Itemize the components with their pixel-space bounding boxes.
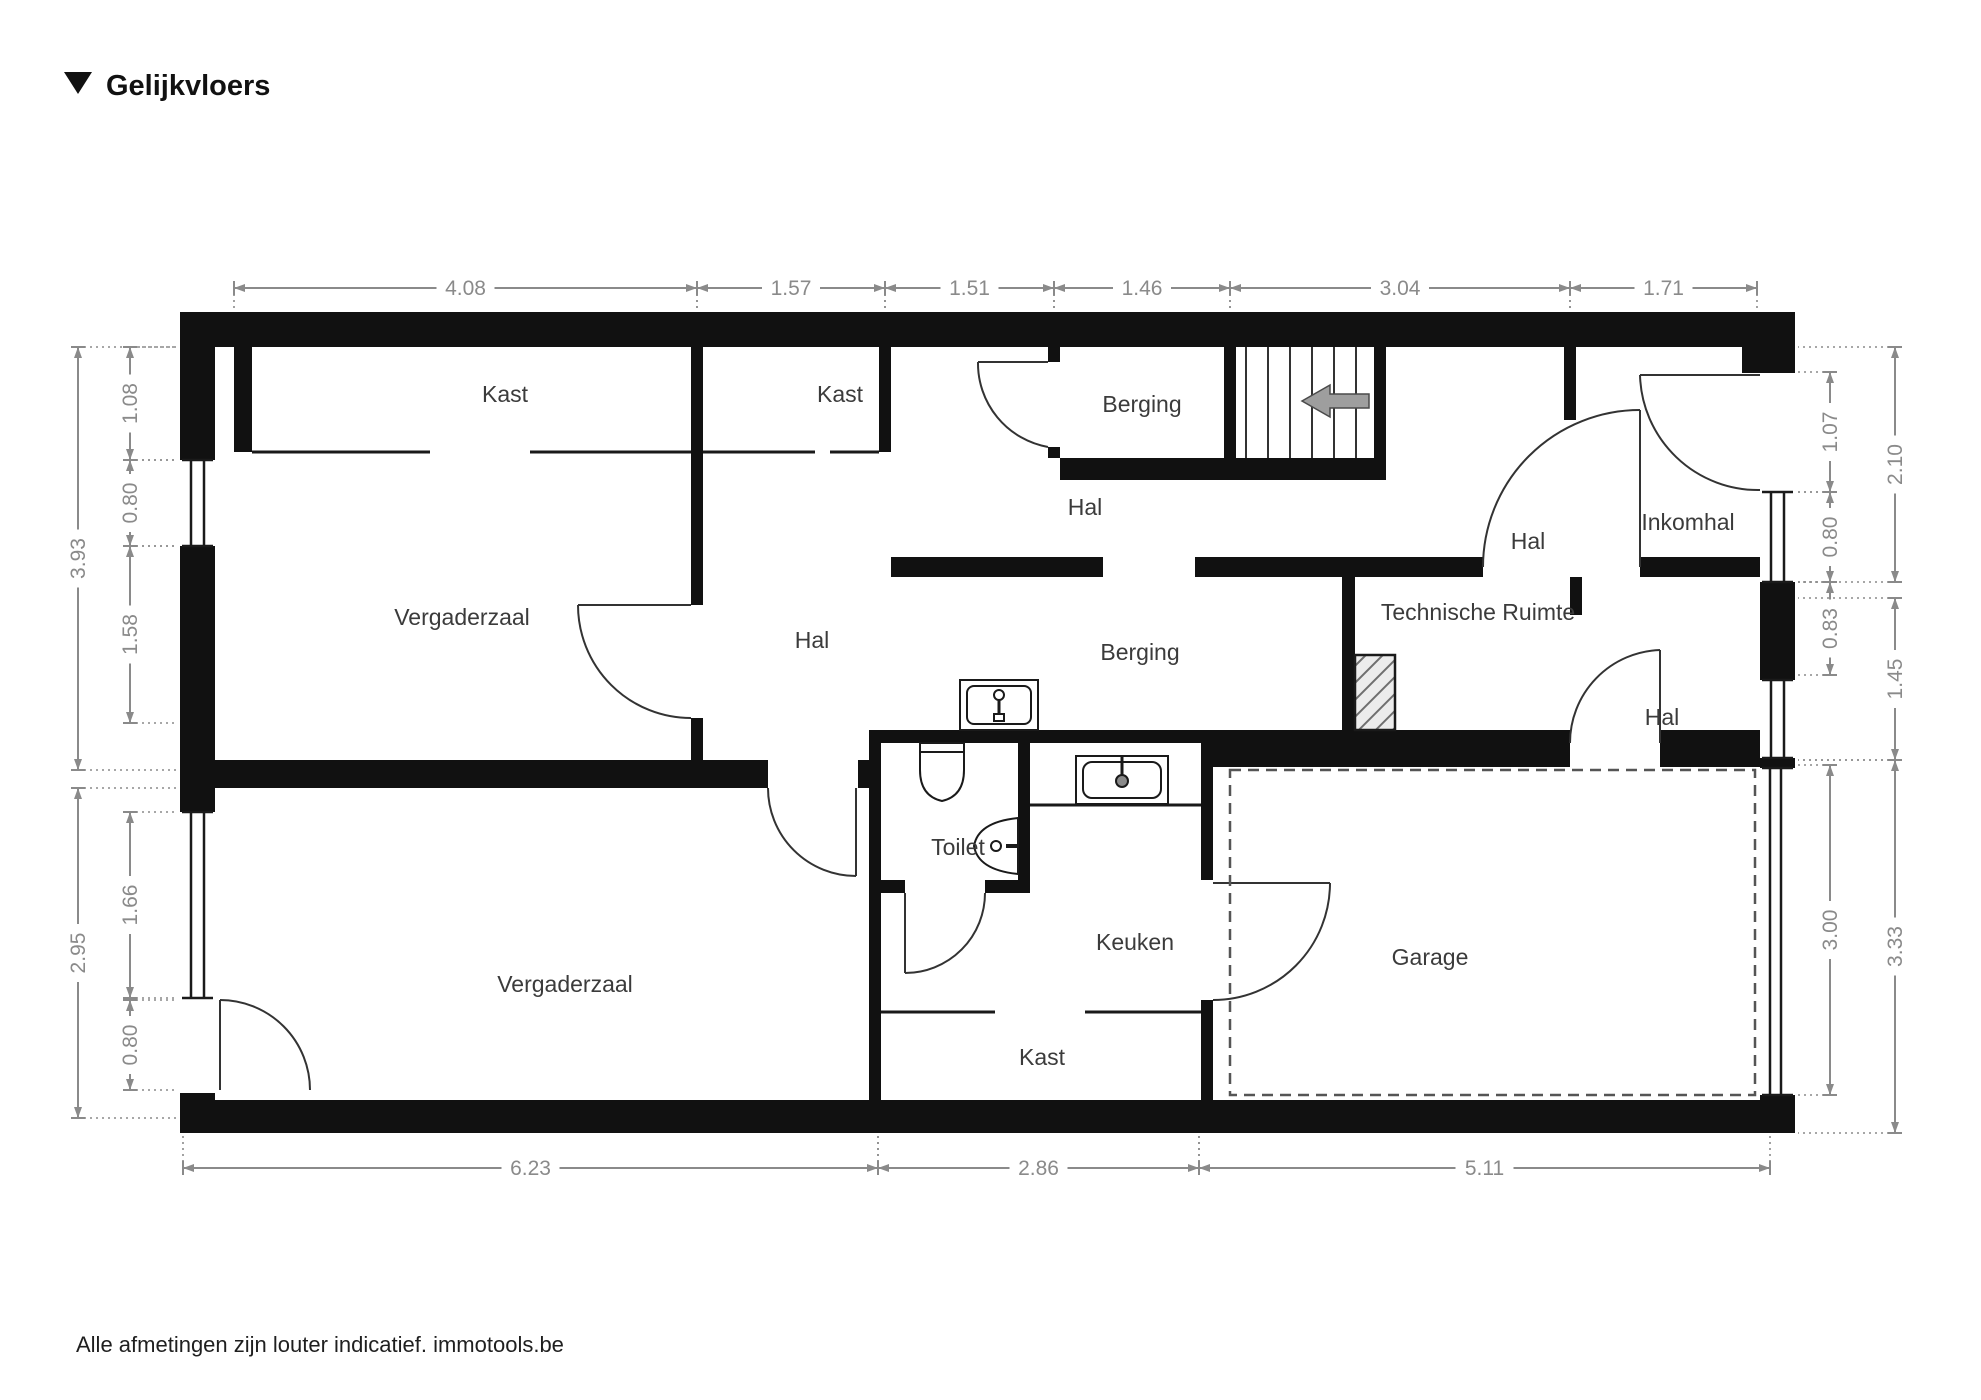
dimension-value: 0.80	[1819, 517, 1842, 558]
dimension-0.80: 0.80	[1798, 492, 1842, 582]
dimension-1.45: 1.45	[1798, 598, 1907, 760]
wall	[180, 1093, 215, 1133]
dimension-arrow-icon	[1826, 372, 1834, 383]
dimension-value: 2.86	[1018, 1157, 1059, 1180]
dimension-1.08: 1.08	[119, 347, 178, 460]
dimension-arrow-icon	[126, 535, 134, 546]
dimension-arrow-icon	[126, 812, 134, 823]
dimension-arrow-icon	[74, 347, 82, 358]
dimension-arrow-icon	[74, 788, 82, 799]
window-icon	[1762, 680, 1793, 758]
floor-plan-svg: Gelijkvloers	[0, 0, 1981, 1400]
wall	[879, 347, 891, 452]
dimension-0.80: 0.80	[119, 460, 178, 546]
dimension-3.00: 3.00	[1798, 765, 1842, 1095]
toilet-bowl-icon	[920, 743, 964, 801]
dimension-arrow-icon	[1043, 284, 1054, 292]
kitchen-sink-icon	[1076, 756, 1168, 804]
dimension-arrow-icon	[126, 987, 134, 998]
dimension-arrow-icon	[1826, 582, 1834, 593]
wall	[1195, 557, 1483, 577]
dimension-arrow-icon	[1746, 284, 1757, 292]
room-label-hal: Hal	[1068, 494, 1103, 520]
room-labels: KastKastBergingHalHalInkomhalVergaderzaa…	[394, 381, 1734, 1070]
dimension-3.33: 3.33	[1798, 760, 1907, 1133]
door-icon	[978, 362, 1048, 447]
dimension-arrow-icon	[126, 1000, 134, 1011]
dimension-2.10: 2.10	[1798, 347, 1907, 582]
wall	[1342, 730, 1570, 767]
dimension-arrow-icon	[1199, 1164, 1210, 1172]
room-label-berging: Berging	[1100, 639, 1179, 665]
dimension-arrow-icon	[878, 1164, 889, 1172]
room-label-vergaderzaal: Vergaderzaal	[394, 604, 530, 630]
dimension-arrow-icon	[686, 284, 697, 292]
dimension-4.08: 4.08	[234, 277, 697, 310]
wall	[869, 743, 881, 1100]
dimension-value: 1.51	[949, 277, 990, 300]
dimension-arrow-icon	[234, 284, 245, 292]
wall	[869, 730, 1342, 743]
dimension-arrow-icon	[697, 284, 708, 292]
dimension-1.57: 1.57	[697, 277, 885, 310]
dimension-1.07: 1.07	[1798, 372, 1842, 492]
wall	[1564, 347, 1576, 420]
dimension-arrow-icon	[126, 460, 134, 471]
dimension-arrow-icon	[74, 1107, 82, 1118]
wall	[1018, 742, 1030, 893]
wall	[985, 880, 1030, 893]
wall	[234, 347, 252, 452]
wall	[180, 312, 1795, 347]
garage-door-icon	[1762, 768, 1793, 1095]
room-label-hal: Hal	[795, 627, 830, 653]
room-label-kast: Kast	[1019, 1044, 1066, 1070]
dimension-arrow-icon	[1891, 347, 1899, 358]
dimension-value: 1.07	[1819, 412, 1842, 453]
title-triangle-icon	[64, 72, 92, 94]
dimension-value: 1.58	[119, 614, 142, 655]
dimension-arrow-icon	[874, 284, 885, 292]
wall	[180, 546, 215, 812]
dimension-arrow-icon	[126, 546, 134, 557]
dimension-arrow-icon	[867, 1164, 878, 1172]
wall	[1374, 347, 1386, 458]
dimension-3.04: 3.04	[1230, 277, 1570, 310]
dimension-value: 3.33	[1884, 926, 1907, 967]
dimension-value: 6.23	[510, 1157, 551, 1180]
room-label-keuken: Keuken	[1096, 929, 1174, 955]
dimension-value: 5.11	[1465, 1157, 1504, 1180]
wall	[1760, 312, 1795, 372]
dimension-arrow-icon	[1559, 284, 1570, 292]
room-label-berging: Berging	[1102, 391, 1181, 417]
wall	[1660, 730, 1760, 767]
wall	[1060, 458, 1386, 480]
room-label-garage: Garage	[1392, 944, 1469, 970]
dimension-arrow-icon	[1891, 1122, 1899, 1133]
wall	[891, 557, 1103, 577]
dimension-value: 2.10	[1884, 444, 1907, 485]
page-title: Gelijkvloers	[64, 70, 270, 102]
dimension-arrow-icon	[1891, 571, 1899, 582]
dimension-arrow-icon	[126, 1079, 134, 1090]
door-icon	[220, 1000, 310, 1090]
dimension-arrow-icon	[1891, 598, 1899, 609]
wall	[1224, 347, 1236, 458]
door-icon	[1483, 410, 1640, 567]
dimension-value: 3.00	[1819, 910, 1842, 951]
room-label-toilet: Toilet	[931, 834, 985, 860]
dimension-arrow-icon	[126, 347, 134, 358]
room-label-kast: Kast	[817, 381, 864, 407]
wall	[691, 718, 703, 763]
wall	[180, 312, 215, 460]
dimension-value: 1.46	[1122, 277, 1163, 300]
room-label-inkomhal: Inkomhal	[1641, 509, 1734, 535]
dimension-arrow-icon	[1891, 760, 1899, 771]
dimension-value: 0.83	[1819, 608, 1842, 649]
wall	[180, 1100, 1795, 1133]
dimension-arrow-icon	[183, 1164, 194, 1172]
wall	[881, 880, 905, 893]
dimension-arrow-icon	[74, 759, 82, 770]
dimension-value: 3.93	[67, 538, 90, 579]
room-label-vergaderzaal: Vergaderzaal	[497, 971, 633, 997]
door-icon	[578, 605, 691, 718]
dimension-arrow-icon	[1826, 765, 1834, 776]
dimension-arrow-icon	[1759, 1164, 1770, 1172]
dimension-arrow-icon	[1219, 284, 1230, 292]
wall	[215, 760, 768, 788]
room-label-kast: Kast	[482, 381, 529, 407]
dimension-1.58: 1.58	[119, 546, 178, 723]
footer-disclaimer: Alle afmetingen zijn louter indicatief. …	[76, 1332, 564, 1357]
dimension-arrow-icon	[1826, 1084, 1834, 1095]
dimension-2.86: 2.86	[878, 1136, 1199, 1180]
dimension-arrow-icon	[1570, 284, 1581, 292]
wall	[1201, 743, 1342, 767]
dimension-arrow-icon	[1826, 481, 1834, 492]
dimension-value: 1.71	[1643, 277, 1684, 300]
dimension-arrow-icon	[1826, 571, 1834, 582]
parking-space-dashed-outline	[1230, 770, 1755, 1095]
dimension-value: 1.66	[119, 885, 142, 926]
dimension-value: 0.80	[119, 1025, 142, 1066]
wall	[1048, 447, 1060, 458]
door-icon	[905, 893, 985, 973]
wall	[1048, 347, 1060, 362]
dimension-arrow-icon	[1230, 284, 1241, 292]
dimension-arrow-icon	[1826, 664, 1834, 675]
dimension-arrow-icon	[885, 284, 896, 292]
dimension-arrow-icon	[1826, 492, 1834, 503]
dimension-2.95: 2.95	[67, 788, 178, 1118]
dimension-0.83: 0.83	[1798, 582, 1842, 675]
dimension-value: 4.08	[445, 277, 486, 300]
wall	[1760, 582, 1795, 680]
dimension-arrow-icon	[126, 449, 134, 460]
dimension-arrow-icon	[1188, 1164, 1199, 1172]
dimension-1.51: 1.51	[885, 277, 1054, 310]
room-label-technische-ruimte: Technische Ruimte	[1381, 599, 1575, 625]
window-icon	[182, 460, 213, 546]
door-icon	[768, 788, 856, 876]
dimension-value: 2.95	[67, 933, 90, 974]
dimension-value: 1.45	[1884, 659, 1907, 700]
dimension-5.11: 5.11	[1199, 1136, 1770, 1180]
dimension-value: 3.04	[1380, 277, 1421, 300]
dimension-arrow-icon	[126, 712, 134, 723]
floor-plan-page: Gelijkvloers	[0, 0, 1981, 1400]
dimension-arrow-icon	[1054, 284, 1065, 292]
dimension-1.66: 1.66	[119, 812, 178, 998]
wall	[1640, 557, 1760, 577]
window-icon	[1762, 492, 1793, 582]
dimension-0.80: 0.80	[119, 1000, 178, 1090]
dimension-1.71: 1.71	[1570, 277, 1757, 310]
dimension-arrow-icon	[1891, 749, 1899, 760]
window-icon	[182, 812, 213, 998]
wall	[1760, 758, 1795, 768]
wall	[691, 347, 703, 605]
room-label-hal: Hal	[1645, 704, 1680, 730]
dimension-value: 1.57	[771, 277, 812, 300]
door-icon	[1640, 375, 1760, 490]
wall	[1342, 577, 1355, 743]
room-label-hal: Hal	[1511, 528, 1546, 554]
wall	[1760, 1095, 1795, 1133]
dimension-value: 1.08	[119, 383, 142, 424]
dimension-6.23: 6.23	[183, 1136, 878, 1180]
sink-icon	[960, 680, 1038, 730]
page-title-text: Gelijkvloers	[106, 70, 270, 102]
stairs	[1246, 347, 1369, 458]
boiler-hatch-icon	[1355, 655, 1395, 730]
wall	[1201, 1000, 1213, 1100]
dimension-1.46: 1.46	[1054, 277, 1230, 310]
dimension-value: 0.80	[119, 483, 142, 524]
